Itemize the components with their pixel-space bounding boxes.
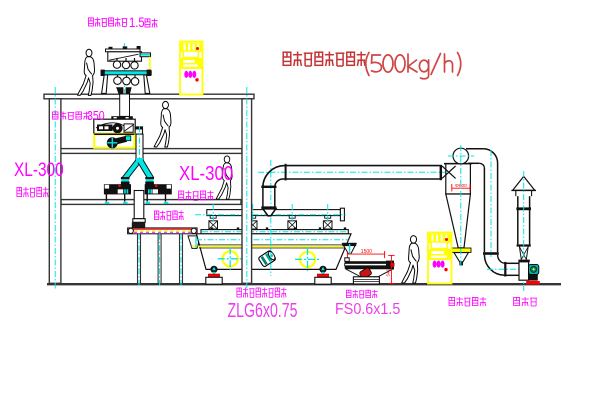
svg-text:ZLG6x0.75: ZLG6x0.75 <box>228 298 298 321</box>
svg-text:350: 350 <box>87 109 105 123</box>
svg-text:FS0.6x1.5: FS0.6x1.5 <box>335 300 400 318</box>
svg-text:1500: 1500 <box>361 249 372 255</box>
svg-text:XL-300: XL-300 <box>179 162 233 185</box>
svg-text:1.5: 1.5 <box>129 15 145 30</box>
svg-text:541: 541 <box>386 268 391 276</box>
svg-text:XL-300: XL-300 <box>14 158 64 180</box>
